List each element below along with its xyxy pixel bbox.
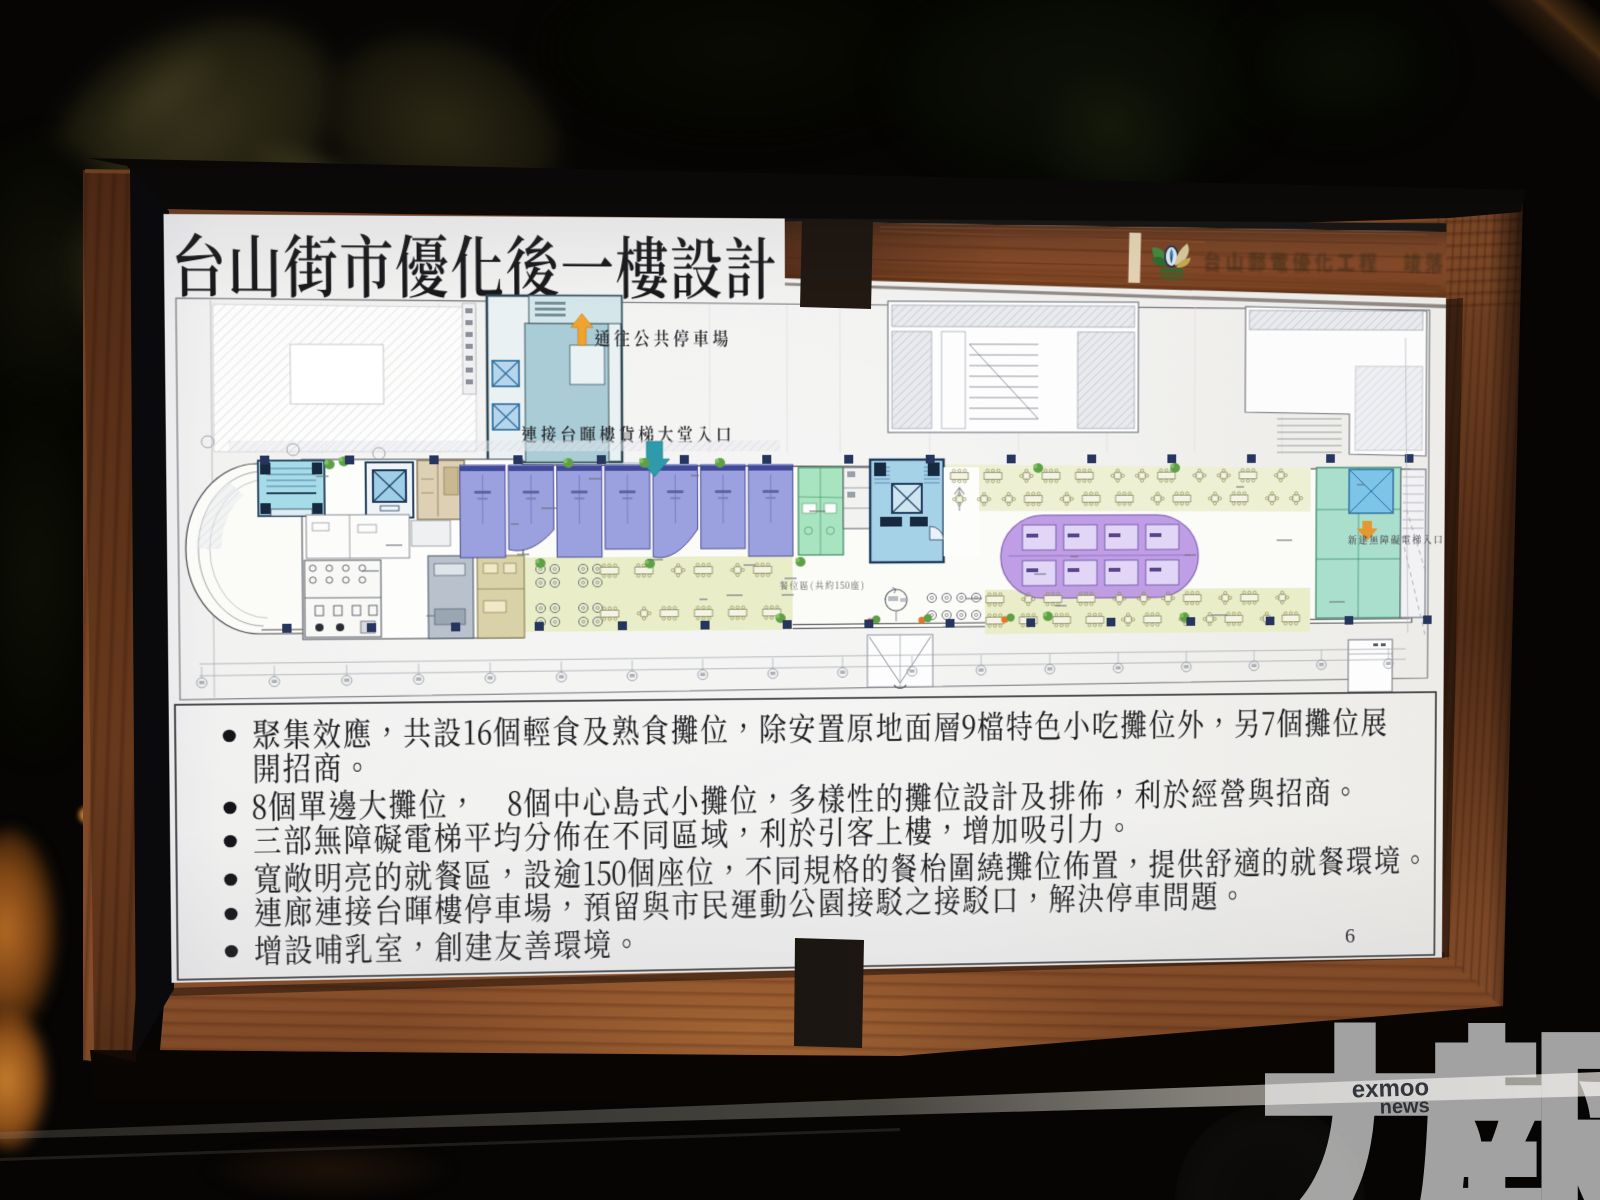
svg-text:news: news	[1379, 1095, 1430, 1119]
